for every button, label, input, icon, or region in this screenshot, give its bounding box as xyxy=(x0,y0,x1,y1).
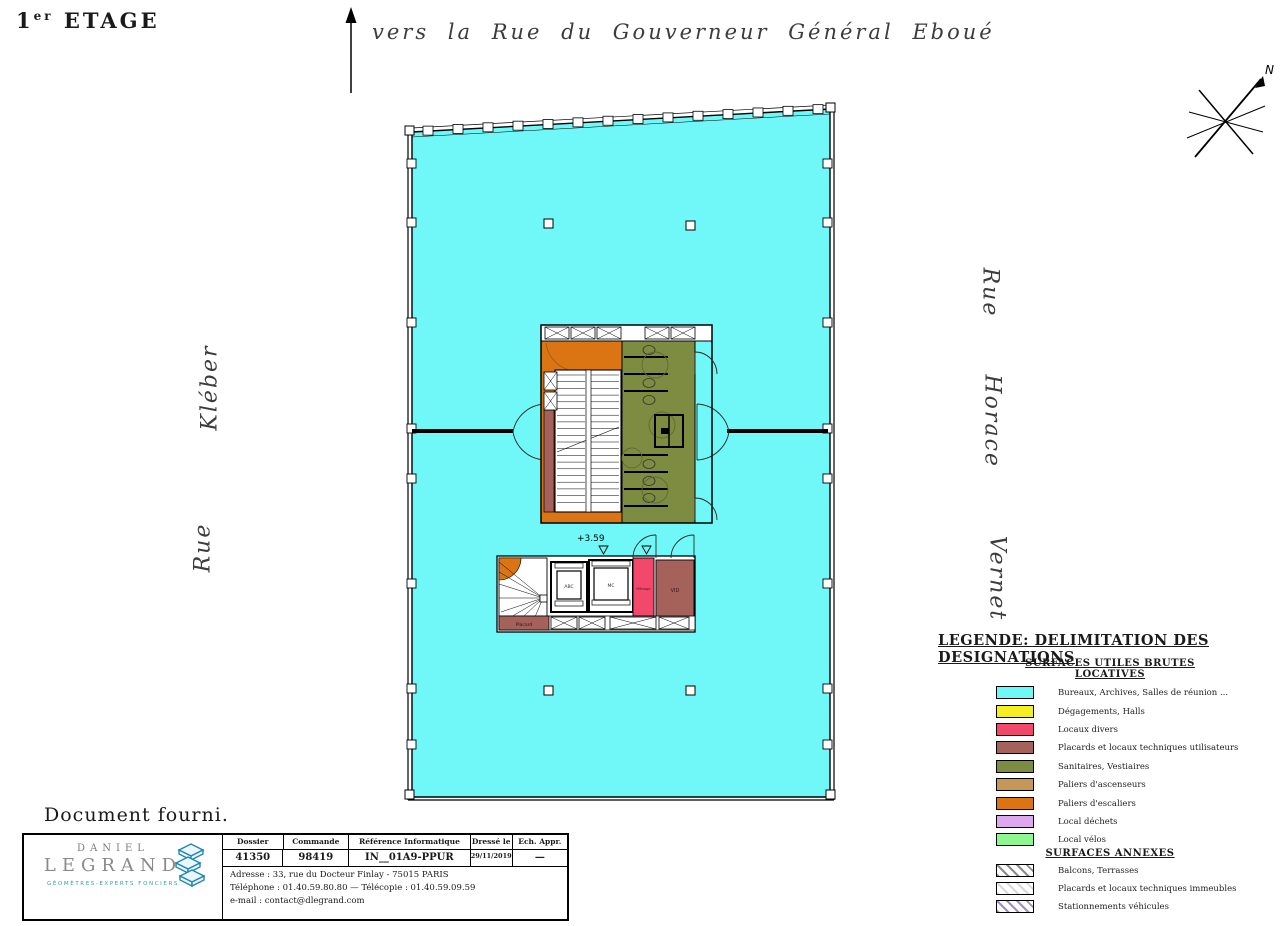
legend-item-label: Local déchets xyxy=(1058,817,1118,827)
legrand-logo-icon xyxy=(172,841,208,891)
elevator-abc: ABC xyxy=(551,562,587,612)
title-block-table: Dossier Commande Référence Informatique … xyxy=(223,835,567,919)
company-contact-block: Adresse : 33, rue du Docteur Finlay - 75… xyxy=(223,867,567,919)
legend-item-label: Locaux divers xyxy=(1058,725,1118,735)
company-logo: DANIEL LEGRAND GÉOMÈTRES-EXPERTS FONCIER… xyxy=(24,835,223,919)
document-note: Document fourni. xyxy=(44,804,229,826)
col-ech-appr: Ech. Appr. xyxy=(513,835,567,850)
legend-swatch xyxy=(996,815,1034,828)
legend-swatch xyxy=(996,900,1034,913)
legend-item: Paliers d'escaliers xyxy=(996,797,1136,810)
legend-item: Placards et locaux techniques utilisateu… xyxy=(996,741,1238,754)
dresse-le-value: 29/11/2019 xyxy=(471,850,513,867)
legend-item: Local vélos xyxy=(996,833,1106,846)
central-core xyxy=(541,325,717,523)
floor-number: 1 xyxy=(16,8,34,33)
street-name-left-rue: Rue xyxy=(191,523,216,573)
compass-north-label: N xyxy=(1265,63,1274,77)
legend-item: Dégagements, Halls xyxy=(996,705,1145,718)
legend-swatch xyxy=(996,864,1034,877)
col-commande: Commande xyxy=(284,835,350,850)
legend-item: Placards et locaux techniques immeubles xyxy=(996,882,1236,895)
title-block: DANIEL LEGRAND GÉOMÈTRES-EXPERTS FONCIER… xyxy=(22,833,569,921)
legend-swatch xyxy=(996,760,1034,773)
street-name-left-kleber: Kléber xyxy=(198,338,223,438)
col-dresse-le: Dressé le xyxy=(471,835,513,850)
commande-value: 98419 xyxy=(283,850,349,867)
company-address: Adresse : 33, rue du Docteur Finlay - 75… xyxy=(230,869,560,882)
legend-item: Sanitaires, Vestiaires xyxy=(996,760,1149,773)
legend-item: Stationnements véhicules xyxy=(996,900,1169,913)
legend-swatch xyxy=(996,882,1034,895)
title-block-value-row: 41350 98419 IN__01A9-PPUR 29/11/2019 — xyxy=(223,850,567,867)
elevator-mc: MC xyxy=(589,560,633,612)
title-block-header-row: Dossier Commande Référence Informatique … xyxy=(223,835,567,850)
legend-swatch xyxy=(996,686,1034,699)
legend-swatch xyxy=(996,705,1034,718)
technical-room-vid-label: VID xyxy=(671,588,680,594)
street-name-right-vernet: Vernet xyxy=(985,534,1010,624)
legend-item-label: Paliers d'escaliers xyxy=(1058,799,1136,809)
legend-item-label: Balcons, Terrasses xyxy=(1058,866,1139,876)
legend-swatch xyxy=(996,833,1034,846)
legend-section-annexes: SURFACES ANNEXES xyxy=(1020,848,1200,859)
sanitary-area xyxy=(622,341,695,523)
legend-item: Local déchets xyxy=(996,815,1118,828)
level-annotation: +3.59 xyxy=(577,534,605,544)
legend-swatch xyxy=(996,723,1034,736)
legend-item-label: Bureaux, Archives, Salles de réunion ... xyxy=(1058,688,1228,698)
floor-title: 1er ETAGE xyxy=(16,8,160,33)
legend-item-label: Stationnements véhicules xyxy=(1058,902,1169,912)
legend-item-label: Sanitaires, Vestiaires xyxy=(1058,762,1149,772)
reference-value: IN__01A9-PPUR xyxy=(349,850,471,867)
col-reference: Référence Informatique xyxy=(349,835,471,850)
legend-item-label: Local vélos xyxy=(1058,835,1106,845)
col-dossier: Dossier xyxy=(223,835,284,850)
legend-item-label: Dégagements, Halls xyxy=(1058,707,1145,717)
legend-item-label: Placards et locaux techniques utilisateu… xyxy=(1058,743,1238,753)
floor-plan: +3.59 ABC MC Ménage V xyxy=(400,95,840,810)
street-name-right-horace: Horace xyxy=(980,375,1005,463)
elevator-abc-label: ABC xyxy=(564,584,573,590)
placard-label: Placard xyxy=(516,622,533,628)
company-phone: Téléphone : 01.40.59.80.80 — Télécopie :… xyxy=(230,882,560,895)
legend-swatch xyxy=(996,778,1034,791)
legend-item: Balcons, Terrasses xyxy=(996,864,1139,877)
legend-item: Locaux divers xyxy=(996,723,1118,736)
legend-section-locatives: SURFACES UTILES BRUTES LOCATIVES xyxy=(995,658,1225,680)
duct-strip xyxy=(544,410,554,512)
floor-word: ETAGE xyxy=(64,8,160,33)
dossier-value: 41350 xyxy=(223,850,283,867)
legend-swatch xyxy=(996,797,1034,810)
floor-ordinal: er xyxy=(34,9,54,23)
ech-appr-value: — xyxy=(513,850,567,867)
elevator-mc-label: MC xyxy=(607,583,614,589)
street-name-top: vers la Rue du Gouverneur Général Eboué xyxy=(372,20,995,44)
legend-item: Bureaux, Archives, Salles de réunion ... xyxy=(996,686,1228,699)
cleaning-room-label: Ménage xyxy=(636,587,651,591)
compass-rose-icon: N xyxy=(1175,60,1280,170)
company-email: e-mail : contact@dlegrand.com xyxy=(230,895,560,908)
legend-item: Paliers d'ascenseurs xyxy=(996,778,1146,791)
legend-item-label: Placards et locaux techniques immeubles xyxy=(1058,884,1236,894)
street-arrow-icon xyxy=(340,5,362,95)
street-name-right-rue: Rue xyxy=(978,268,1003,318)
legend-swatch xyxy=(996,741,1034,754)
legend-item-label: Paliers d'ascenseurs xyxy=(1058,780,1146,790)
